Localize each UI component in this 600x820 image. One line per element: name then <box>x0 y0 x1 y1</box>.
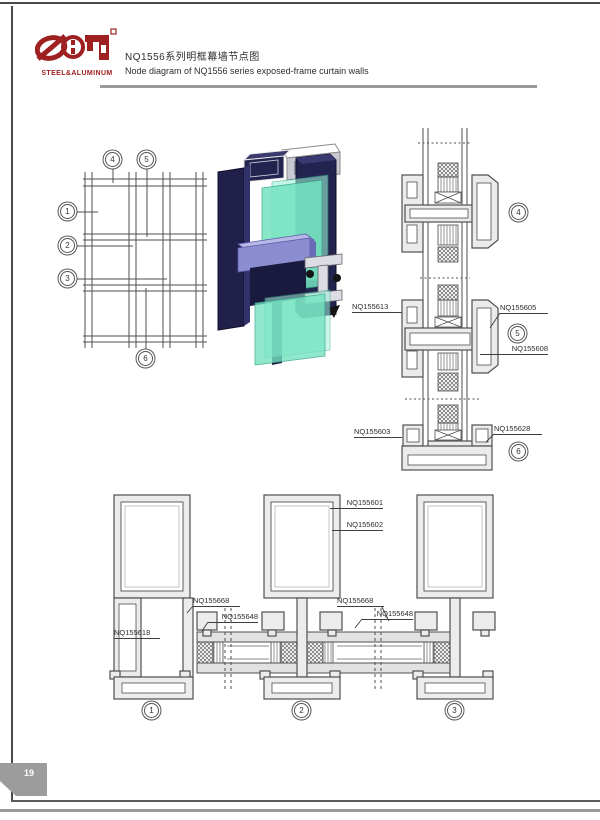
callout-6-section: 6 <box>511 444 526 459</box>
part-label: NQ155648 <box>362 609 413 620</box>
callout-1: 1 <box>60 204 75 219</box>
callout-5: 5 <box>139 152 154 167</box>
part-label: NQ155608 <box>480 344 548 355</box>
page-border-bottom <box>0 809 600 812</box>
callout-3-section: 3 <box>447 703 462 718</box>
part-label: NQ155603 <box>354 427 402 438</box>
callout-1-section: 1 <box>144 703 159 718</box>
company-logo-icon <box>35 27 117 71</box>
callout-5-section: 5 <box>510 326 525 341</box>
company-logo-text: STEEL&ALUMINUM <box>31 70 123 77</box>
callout-3: 3 <box>60 271 75 286</box>
part-label: NQ155613 <box>352 302 402 313</box>
catalog-page: STEEL&ALUMINUM NQ1556系列明框幕墙节点图 Node diag… <box>0 0 600 820</box>
callout-4: 4 <box>105 152 120 167</box>
page-title-en: Node diagram of NQ1556 series exposed-fr… <box>125 66 369 76</box>
horizontal-section-diagram <box>105 488 505 723</box>
callout-2-section: 2 <box>294 703 309 718</box>
page-title-cn: NQ1556系列明框幕墙节点图 <box>125 48 260 63</box>
part-label: NQ155668 <box>193 596 240 607</box>
page-number: 19 <box>24 768 34 778</box>
part-label: NQ155602 <box>332 520 383 531</box>
callout-6: 6 <box>138 351 153 366</box>
part-label: NQ155601 <box>330 498 383 509</box>
3d-node-render <box>210 128 370 368</box>
vertical-section-diagram <box>350 125 550 475</box>
part-label: NQ155605 <box>500 303 548 314</box>
part-label: NQ155648 <box>208 612 258 623</box>
page-border-inner-bottom <box>11 800 600 802</box>
part-label: NQ155668 <box>337 596 384 607</box>
part-label: NQ155618 <box>114 628 160 639</box>
part-label: NQ155628 <box>494 424 542 435</box>
callout-4-section: 4 <box>511 205 526 220</box>
page-border-left <box>11 6 13 802</box>
callout-2: 2 <box>60 238 75 253</box>
title-divider <box>100 85 537 88</box>
elevation-grid-diagram <box>55 145 220 370</box>
page-border-top <box>0 2 600 4</box>
